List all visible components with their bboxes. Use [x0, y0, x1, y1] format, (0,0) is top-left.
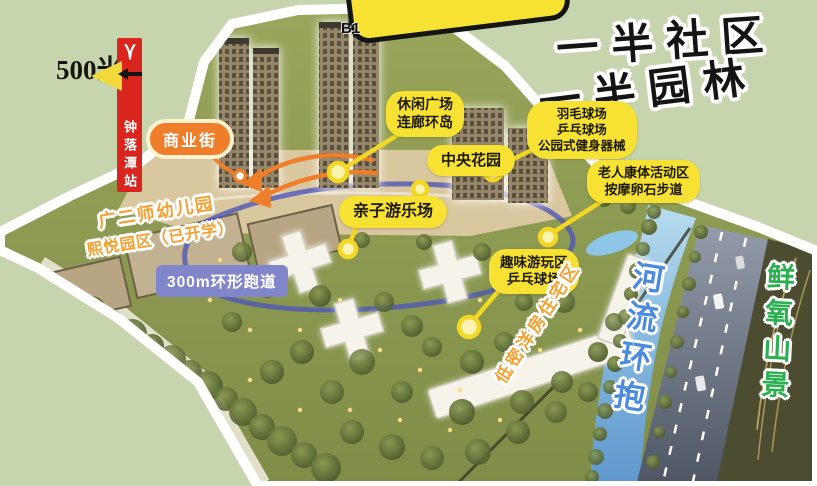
callout-text: 公园式健身器械	[538, 138, 626, 154]
site-plan-poster: 一半社区 一半园林 500米 钟落潭站 B1 商业街 休闲广场 连廊环岛 羽毛球…	[0, 0, 817, 486]
mountain-label: 鲜氧山景	[758, 261, 793, 406]
callout-ring-track: 300m环形跑道	[156, 265, 288, 297]
callout-leisure-plaza: 休闲广场 连廊环岛	[386, 91, 464, 137]
callout-text: 休闲广场	[397, 96, 453, 114]
callout-text: 老人康体活动区	[598, 165, 689, 182]
metro-station-name: 钟落潭站	[123, 120, 136, 192]
callout-elderly-fitness: 老人康体活动区 按摩卵石步道	[587, 160, 700, 203]
callout-text: 按摩卵石步道	[598, 182, 689, 199]
callout-sports-courts: 羽毛球场 乒乓球场 公园式健身器械	[527, 101, 637, 159]
callout-text: 乒乓球场	[538, 122, 626, 138]
tower-b1-label: B1	[341, 20, 360, 37]
callout-text: 羽毛球场	[538, 106, 626, 122]
left-arrow-icon	[117, 66, 143, 82]
callout-text: 连廊环岛	[397, 114, 453, 132]
callout-central-garden: 中央花园	[427, 145, 515, 176]
leader-dot	[235, 171, 246, 182]
guangzhou-metro-y-icon	[121, 44, 139, 60]
callout-family-playground: 亲子游乐场	[339, 196, 447, 228]
callout-commercial-street: 商业街	[146, 119, 234, 159]
